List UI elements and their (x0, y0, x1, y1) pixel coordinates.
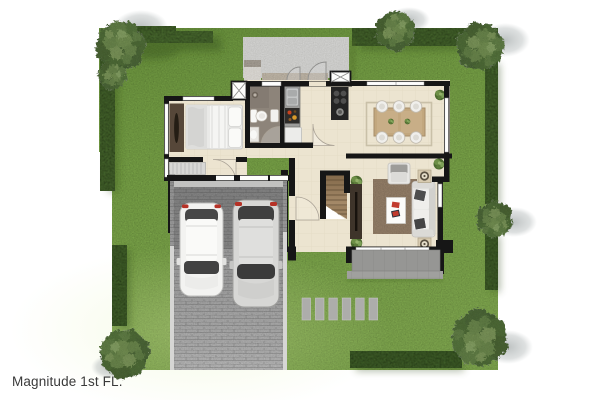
svg-text:Magnitude 1st FL.: Magnitude 1st FL. (12, 374, 123, 389)
